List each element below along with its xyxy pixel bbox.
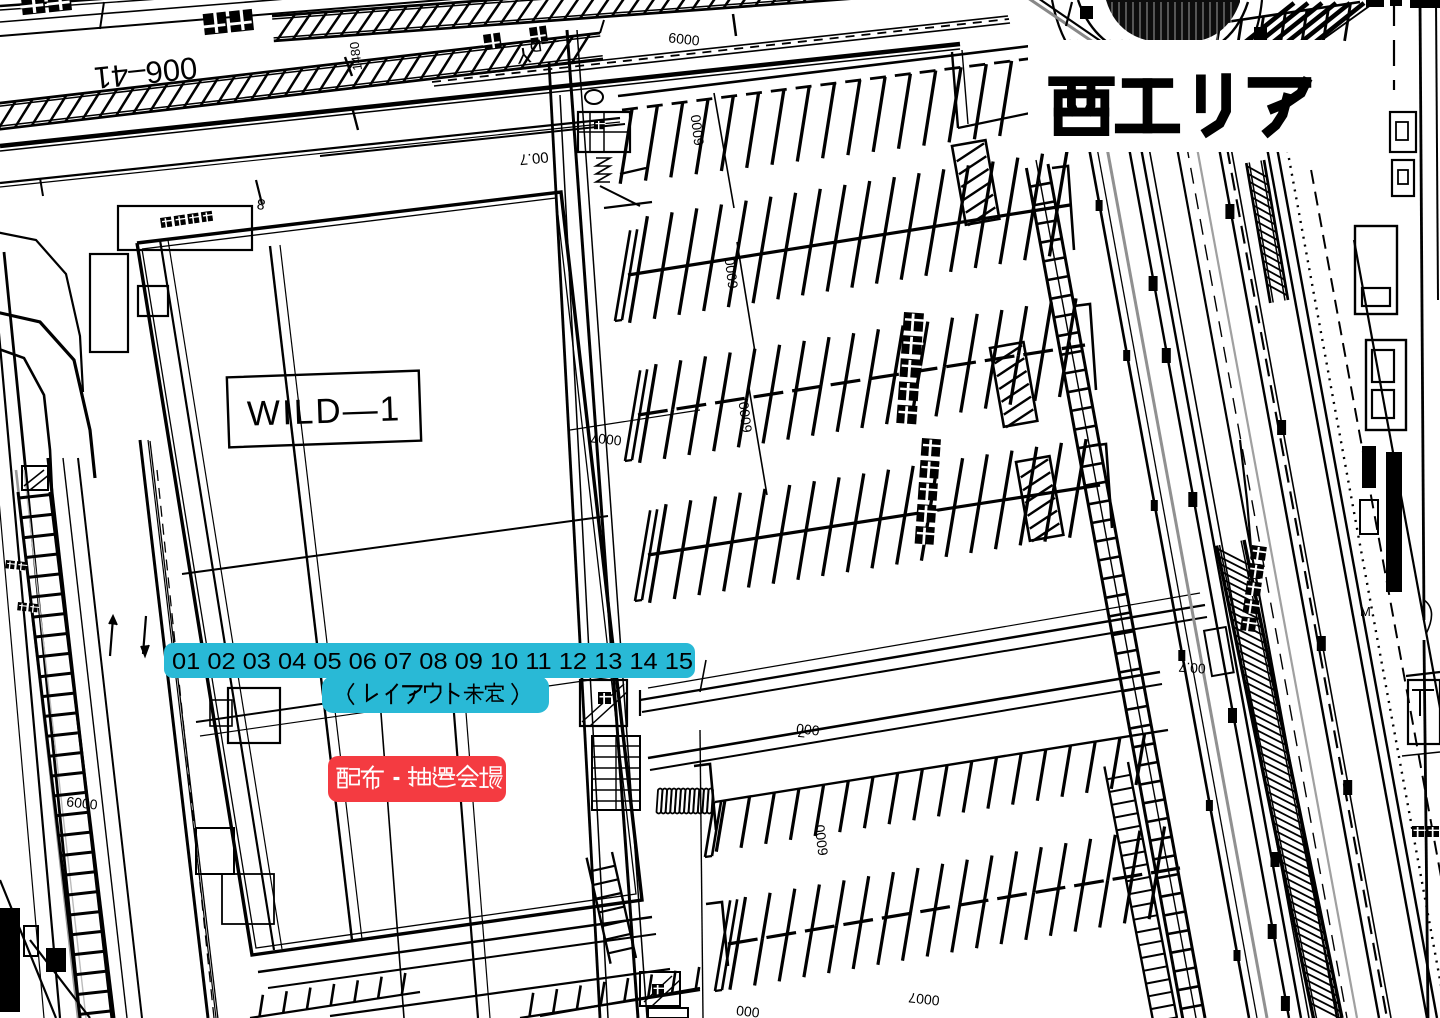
svg-text:000: 000: [735, 1003, 760, 1018]
svg-text:M: M: [1360, 604, 1371, 619]
svg-text:0007: 0007: [907, 990, 940, 1009]
svg-text:00.7: 00.7: [519, 148, 550, 168]
svg-text:01 02 03 04 05 06 07 08 09 10: 01 02 03 04 05 06 07 08 09 10 11 12 13 1…: [172, 648, 693, 674]
svg-text:0009: 0009: [65, 794, 98, 813]
svg-text:0007: 0007: [589, 430, 622, 449]
svg-text:00.7: 00.7: [1178, 659, 1207, 677]
svg-text:0009: 0009: [667, 30, 700, 49]
svg-text:—D: —D: [528, 33, 560, 56]
svg-text:WILD—1: WILD—1: [246, 389, 401, 433]
